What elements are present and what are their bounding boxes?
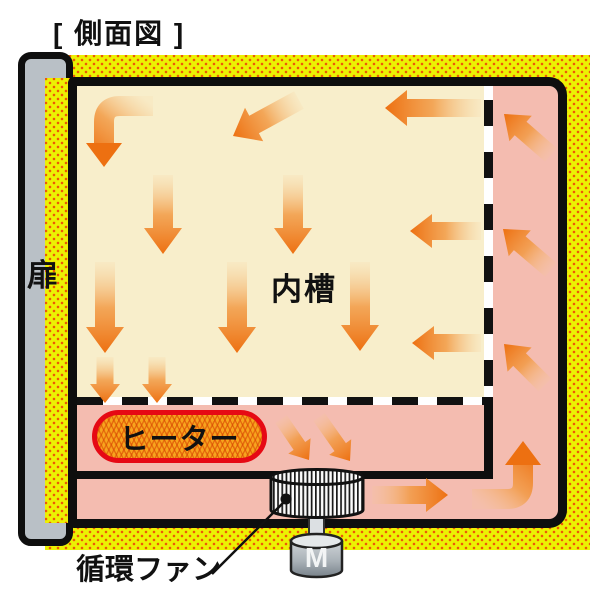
chamber-bottom-dashed-wall <box>77 397 484 405</box>
heater-compartment-wall-horizontal <box>77 471 493 479</box>
heater: ヒーター <box>92 410 267 463</box>
side-view-diagram: [ 側面図 ] ヒーター M <box>0 0 600 600</box>
diagram-title: [ 側面図 ] <box>53 12 185 52</box>
door-label: 扉 <box>27 250 58 295</box>
heater-compartment-wall-vertical <box>484 397 493 479</box>
fan-label: 循環ファン <box>76 546 221 588</box>
door-insulation-strip <box>45 78 70 523</box>
chamber-right-dashed-wall <box>484 86 493 397</box>
chamber-label: 内槽 <box>271 264 337 309</box>
heater-label: ヒーター <box>119 416 239 458</box>
inner-chamber <box>77 86 484 397</box>
